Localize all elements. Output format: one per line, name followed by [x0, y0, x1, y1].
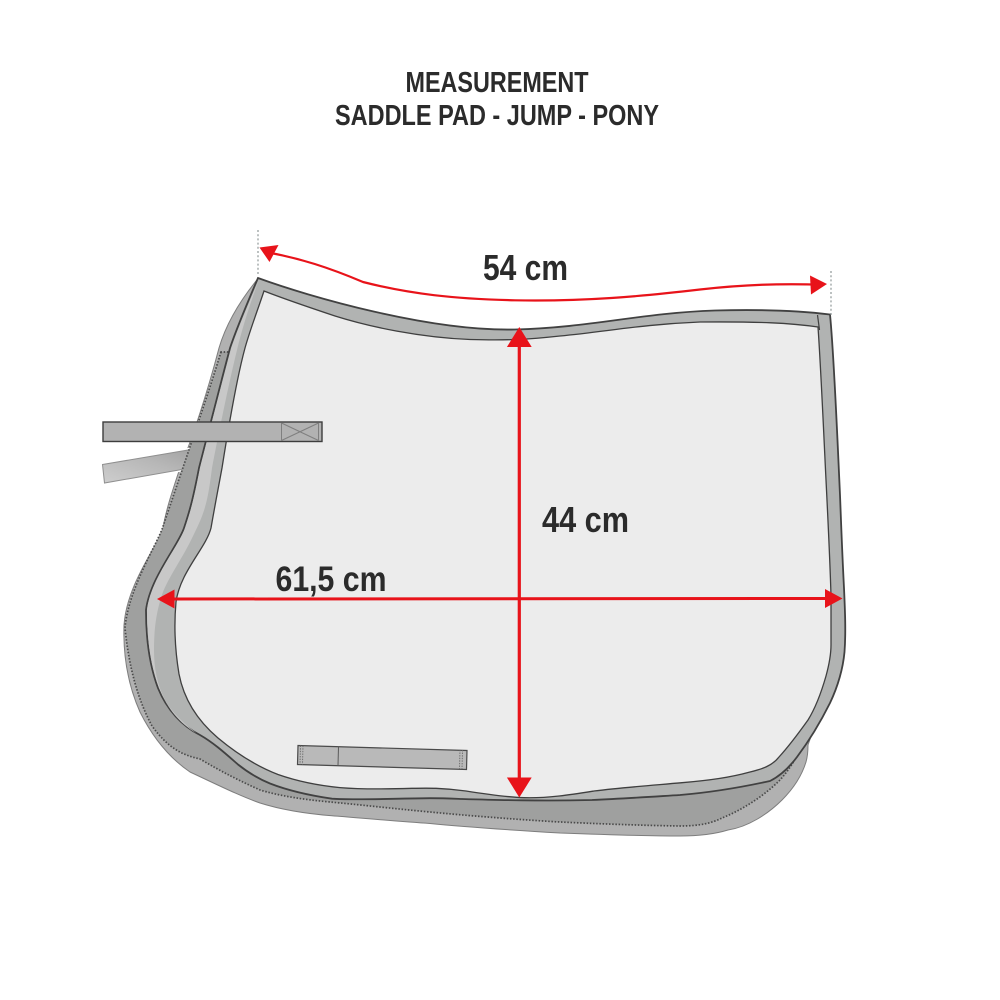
svg-text:SADDLE PAD - JUMP - PONY: SADDLE PAD - JUMP - PONY — [335, 100, 659, 132]
svg-text:54 cm: 54 cm — [483, 247, 568, 288]
svg-text:44 cm: 44 cm — [542, 499, 629, 540]
svg-text:61,5 cm: 61,5 cm — [276, 560, 387, 599]
svg-text:MEASUREMENT: MEASUREMENT — [406, 67, 589, 99]
